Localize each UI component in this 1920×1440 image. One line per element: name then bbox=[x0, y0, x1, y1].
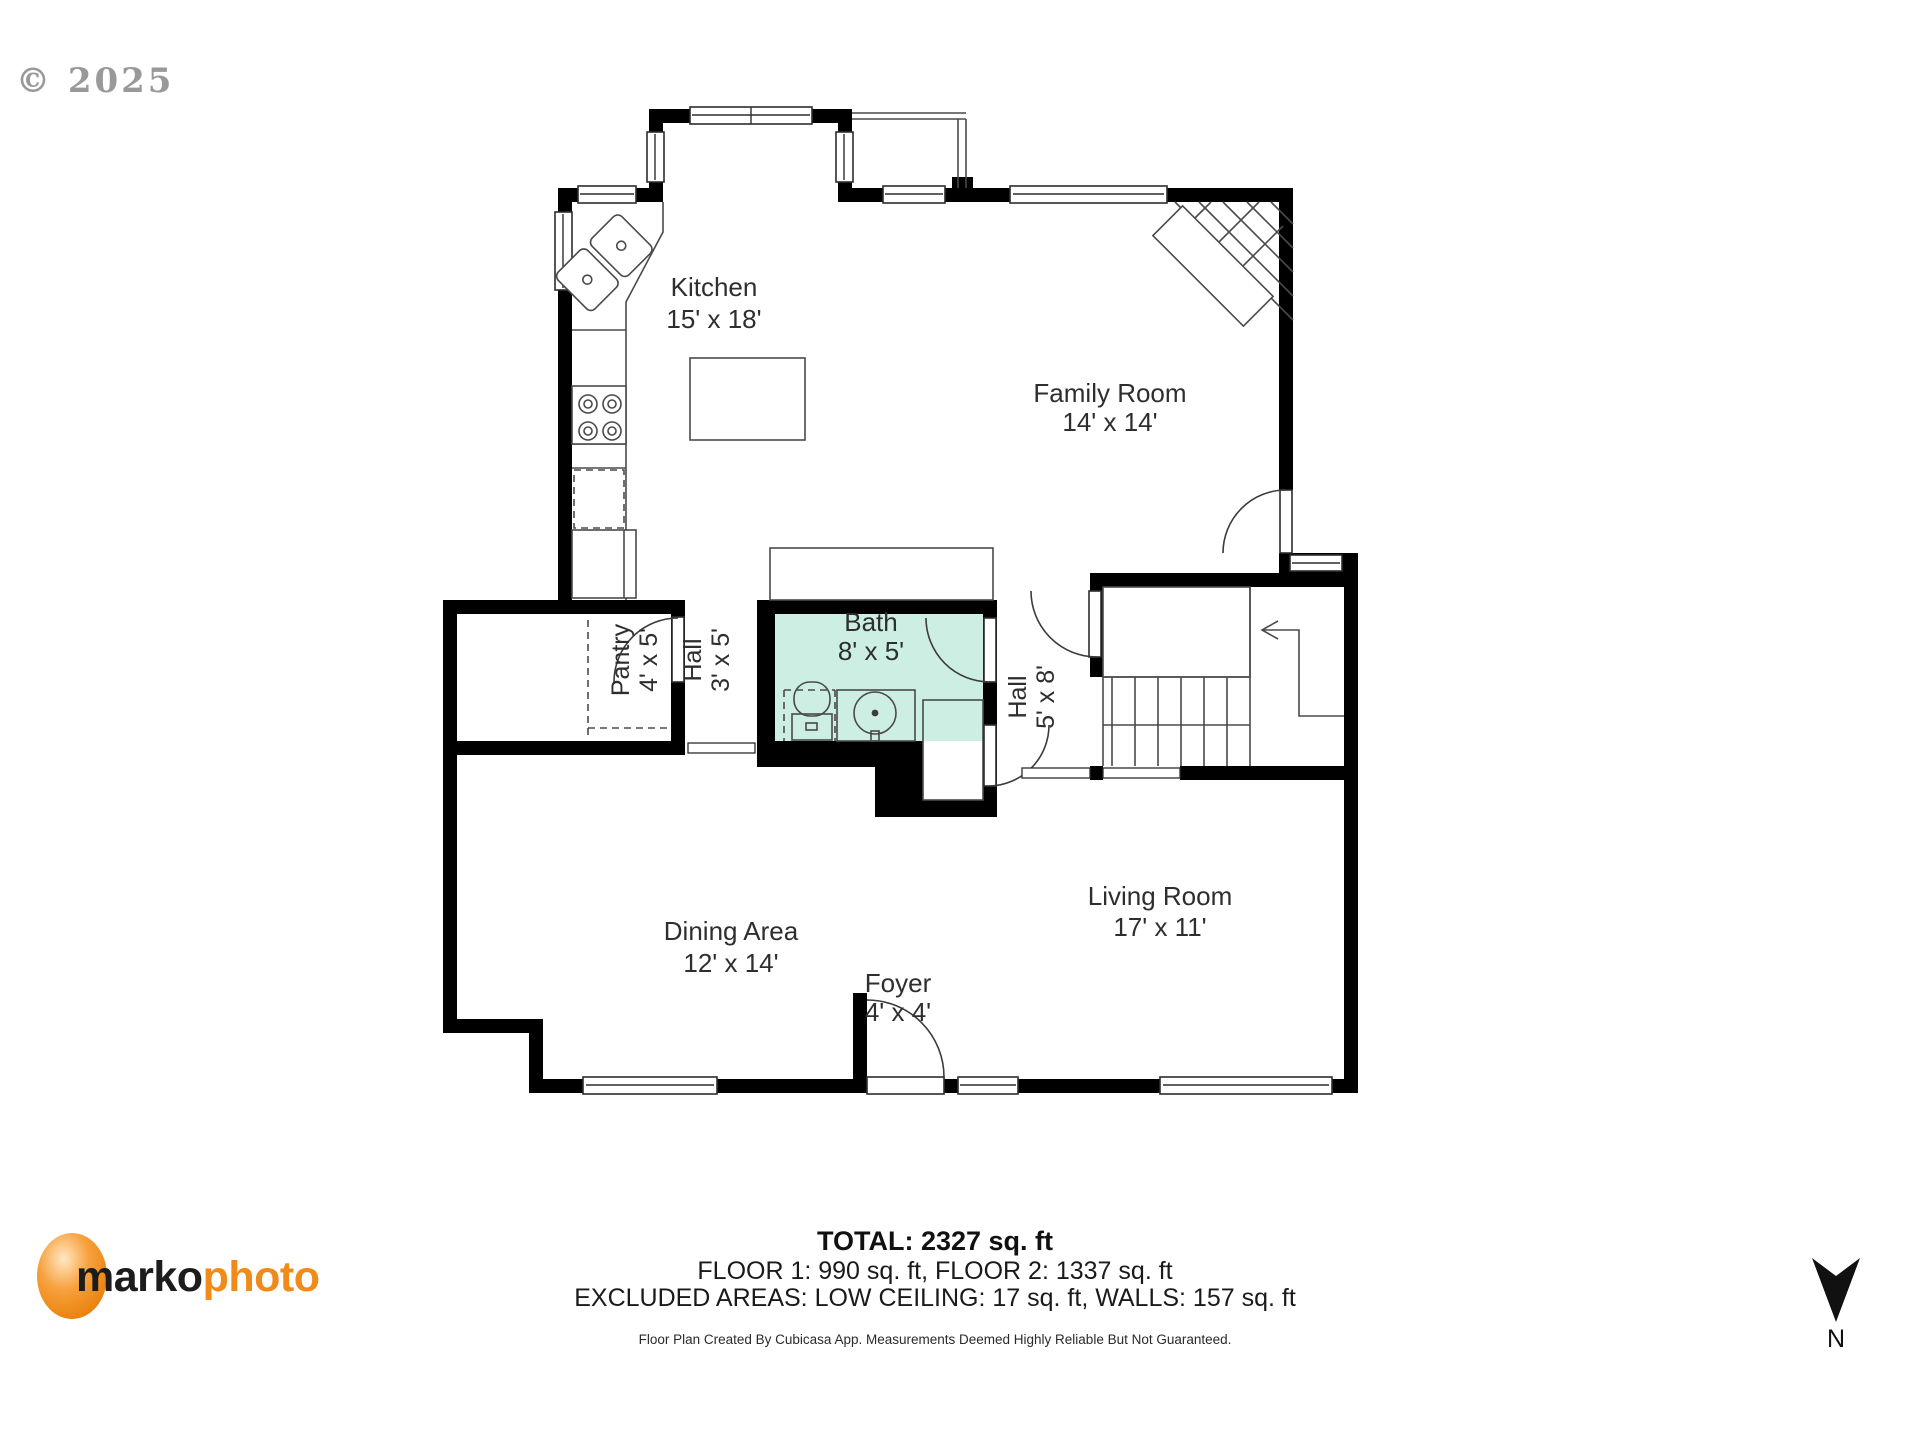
markophoto-logo: markophoto bbox=[37, 1233, 319, 1319]
floor-plan-page: © 2025 bbox=[0, 0, 1920, 1440]
svg-text:8' x 5': 8' x 5' bbox=[838, 636, 904, 666]
built-in-counter bbox=[770, 548, 993, 600]
disclaimer: Floor Plan Created By Cubicasa App. Meas… bbox=[639, 1332, 1232, 1347]
svg-text:4' x 5': 4' x 5' bbox=[635, 628, 663, 692]
svg-text:Hall: Hall bbox=[1004, 675, 1032, 718]
svg-text:5' x 8': 5' x 8' bbox=[1032, 665, 1060, 729]
staircase bbox=[1103, 587, 1344, 766]
dishwasher-icon bbox=[574, 470, 624, 528]
svg-text:Hall: Hall bbox=[679, 638, 707, 681]
north-label: N bbox=[1827, 1325, 1845, 1353]
window bbox=[958, 1077, 1018, 1094]
window bbox=[1290, 555, 1342, 571]
door-family-room bbox=[1223, 490, 1292, 553]
room-label-living-room: Living Room 17' x 11' bbox=[1088, 881, 1233, 942]
svg-text:14' x 14': 14' x 14' bbox=[1062, 407, 1157, 437]
copyright-watermark: © 2025 bbox=[16, 61, 174, 101]
logo-text: markophoto bbox=[76, 1253, 319, 1301]
floor-plan-canvas: © 2025 bbox=[0, 0, 1920, 1440]
svg-text:Kitchen: Kitchen bbox=[671, 272, 758, 302]
fireplace-icon bbox=[1153, 202, 1293, 326]
window bbox=[690, 107, 812, 124]
room-label-foyer: Foyer 4' x 4' bbox=[865, 968, 932, 1027]
svg-text:12' x 14': 12' x 14' bbox=[683, 948, 778, 978]
kitchen-fixtures bbox=[554, 202, 993, 600]
svg-text:Pantry: Pantry bbox=[607, 623, 635, 696]
room-label-pantry: Pantry 4' x 5' bbox=[607, 623, 663, 696]
room-label-hall-small: Hall 3' x 5' bbox=[679, 628, 735, 692]
svg-text:3' x 5': 3' x 5' bbox=[707, 628, 735, 692]
door-stair-closet bbox=[1031, 591, 1101, 657]
window bbox=[647, 132, 664, 182]
window bbox=[583, 1077, 717, 1094]
footer-summary: TOTAL: 2327 sq. ft FLOOR 1: 990 sq. ft, … bbox=[574, 1226, 1296, 1347]
stove-icon bbox=[572, 386, 626, 444]
svg-text:Bath: Bath bbox=[844, 607, 898, 637]
compass: N bbox=[1812, 1258, 1860, 1353]
refrigerator-icon bbox=[572, 530, 636, 598]
svg-text:15' x 18': 15' x 18' bbox=[666, 304, 761, 334]
window bbox=[1010, 186, 1167, 203]
excluded-areas: EXCLUDED AREAS: LOW CEILING: 17 sq. ft, … bbox=[574, 1284, 1296, 1312]
north-arrow-icon bbox=[1812, 1258, 1860, 1322]
svg-text:17' x 11': 17' x 11' bbox=[1113, 912, 1206, 942]
stair-closet bbox=[1103, 587, 1250, 677]
window bbox=[836, 132, 853, 182]
floor-areas: FLOOR 1: 990 sq. ft, FLOOR 2: 1337 sq. f… bbox=[697, 1257, 1172, 1285]
svg-text:Dining Area: Dining Area bbox=[664, 916, 799, 946]
room-label-kitchen: Kitchen 15' x 18' bbox=[666, 272, 761, 334]
svg-text:Living Room: Living Room bbox=[1088, 881, 1233, 911]
room-label-family-room: Family Room 14' x 14' bbox=[1033, 378, 1186, 437]
room-label-hall-large: Hall 5' x 8' bbox=[1004, 665, 1060, 729]
window bbox=[578, 186, 636, 203]
stair-direction-arrow bbox=[1262, 621, 1344, 716]
porch-outline bbox=[852, 113, 966, 188]
window bbox=[883, 186, 945, 203]
kitchen-island bbox=[690, 358, 805, 440]
room-label-bath: Bath 8' x 5' bbox=[838, 607, 904, 666]
svg-text:4' x 4': 4' x 4' bbox=[865, 997, 931, 1027]
total-area: TOTAL: 2327 sq. ft bbox=[817, 1226, 1053, 1256]
svg-text:Family Room: Family Room bbox=[1033, 378, 1186, 408]
window bbox=[1160, 1077, 1332, 1094]
svg-text:Foyer: Foyer bbox=[865, 968, 932, 998]
room-label-dining-area: Dining Area 12' x 14' bbox=[664, 916, 799, 978]
